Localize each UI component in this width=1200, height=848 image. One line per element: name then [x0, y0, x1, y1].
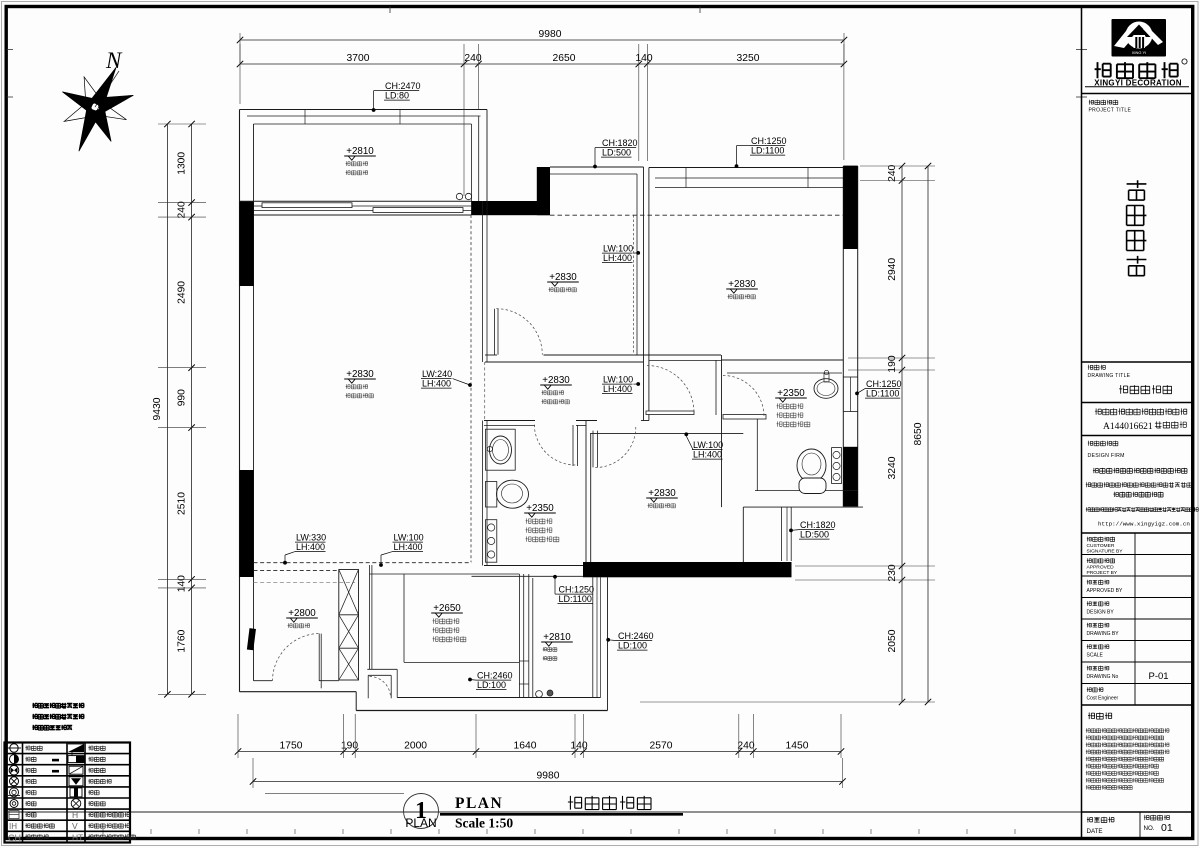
svg-text:CH:1250: CH:1250	[751, 136, 787, 146]
svg-text:+2800: +2800	[288, 608, 316, 619]
svg-text:2650: 2650	[553, 53, 576, 64]
svg-text:LH:400: LH:400	[422, 379, 451, 389]
svg-text:SCALE: SCALE	[1087, 653, 1104, 659]
svg-text:LW:100: LW:100	[603, 244, 633, 254]
svg-text:N: N	[105, 48, 123, 73]
svg-text:240: 240	[177, 201, 188, 218]
svg-text:APPROVED: APPROVED	[1087, 565, 1115, 571]
svg-text:240: 240	[464, 53, 481, 64]
svg-text:1640: 1640	[514, 741, 537, 752]
svg-text:LD:100: LD:100	[618, 641, 647, 651]
svg-text:Scale 1:50: Scale 1:50	[455, 816, 513, 831]
svg-text:CH:2470: CH:2470	[385, 81, 421, 91]
svg-text:LD:1100: LD:1100	[866, 389, 899, 399]
svg-text:http://www.xingyigz.com.cn: http://www.xingyigz.com.cn	[1098, 521, 1190, 528]
svg-text:DRAWING No: DRAWING No	[1087, 674, 1119, 680]
svg-text:9980: 9980	[537, 771, 560, 782]
svg-text:CH:2460: CH:2460	[477, 671, 513, 681]
svg-text:+2350: +2350	[526, 503, 554, 514]
svg-text:CH:1250: CH:1250	[559, 585, 595, 595]
svg-text:PROJECT TITLE: PROJECT TITLE	[1089, 108, 1132, 114]
svg-text:LW:240: LW:240	[422, 369, 452, 379]
svg-text:+2830: +2830	[648, 488, 676, 499]
svg-text:XINGYI DECORATION: XINGYI DECORATION	[1094, 78, 1182, 87]
svg-text:CH: CH	[8, 833, 21, 843]
svg-text:LD:500: LD:500	[800, 530, 829, 540]
svg-text:LW:330: LW:330	[296, 533, 326, 543]
svg-text:PLAN: PLAN	[405, 816, 436, 830]
svg-text:NO.: NO.	[1144, 825, 1155, 832]
svg-text:LH:400: LH:400	[394, 542, 423, 552]
svg-text:+2650: +2650	[433, 603, 461, 614]
svg-text:CH:1250: CH:1250	[866, 379, 902, 389]
svg-text:V: V	[72, 821, 78, 831]
svg-text:A144016621: A144016621	[1103, 422, 1153, 432]
svg-text:8650: 8650	[913, 422, 924, 445]
svg-text:2490: 2490	[177, 281, 188, 304]
svg-text:SIGNATURE BY: SIGNATURE BY	[1087, 549, 1124, 555]
svg-text:140: 140	[635, 53, 652, 64]
svg-text:PLAN: PLAN	[455, 795, 503, 812]
svg-text:9980: 9980	[539, 29, 562, 40]
svg-text:3250: 3250	[737, 53, 760, 64]
svg-text:LH:400: LH:400	[296, 542, 325, 552]
svg-text:+2810: +2810	[543, 632, 571, 643]
svg-text:240: 240	[737, 741, 754, 752]
svg-text:3700: 3700	[347, 53, 370, 64]
svg-text:IH: IH	[9, 822, 17, 831]
svg-text:Cost Engineer: Cost Engineer	[1087, 696, 1119, 702]
svg-text:+2830: +2830	[346, 369, 374, 380]
svg-text:LD:500: LD:500	[602, 148, 631, 158]
svg-text:LW:100: LW:100	[603, 375, 633, 385]
svg-text:DATE: DATE	[1087, 828, 1103, 835]
svg-text:CH:2460: CH:2460	[618, 631, 654, 641]
svg-text:1760: 1760	[177, 629, 188, 652]
svg-text:2510: 2510	[177, 492, 188, 515]
svg-text:H: H	[72, 810, 78, 820]
svg-text:CUSTOMER: CUSTOMER	[1087, 543, 1115, 549]
svg-text:HT: HT	[72, 832, 83, 842]
svg-text:DRAWING BY: DRAWING BY	[1087, 631, 1120, 637]
svg-text:LH:400: LH:400	[603, 384, 632, 394]
svg-text:LD:80: LD:80	[385, 91, 409, 101]
svg-text:DRAWING TITLE: DRAWING TITLE	[1088, 373, 1131, 379]
svg-text:LD:100: LD:100	[477, 680, 506, 690]
svg-text:LW:100: LW:100	[693, 440, 723, 450]
svg-text:DESIGN BY: DESIGN BY	[1087, 610, 1115, 616]
svg-text:+2350: +2350	[777, 388, 805, 399]
svg-text:1450: 1450	[786, 741, 809, 752]
svg-text:LD:1100: LD:1100	[751, 146, 784, 156]
svg-text:XING YI: XING YI	[1132, 50, 1147, 55]
svg-text:+2810: +2810	[346, 146, 374, 157]
svg-text:+2830: +2830	[542, 375, 570, 386]
svg-text:LW:100: LW:100	[394, 533, 424, 543]
svg-text:LD:1100: LD:1100	[559, 594, 592, 604]
svg-text:1750: 1750	[280, 741, 303, 752]
svg-text:990: 990	[177, 389, 188, 406]
svg-text:140: 140	[177, 575, 188, 592]
svg-text:2050: 2050	[887, 629, 898, 652]
svg-text:+2830: +2830	[728, 279, 756, 290]
svg-text:3240: 3240	[887, 456, 898, 479]
svg-text:DESIGN FIRM: DESIGN FIRM	[1088, 453, 1125, 459]
svg-text:+2830: +2830	[549, 272, 577, 283]
svg-text:LH:400: LH:400	[603, 253, 632, 263]
svg-text:230: 230	[887, 564, 898, 581]
svg-text:APPROVED BY: APPROVED BY	[1087, 588, 1124, 594]
svg-text:9430: 9430	[152, 397, 163, 420]
svg-text:1300: 1300	[177, 152, 188, 175]
svg-text:2000: 2000	[404, 741, 427, 752]
svg-text:01: 01	[1161, 822, 1173, 834]
svg-text:CH:1820: CH:1820	[602, 138, 638, 148]
svg-text:240: 240	[887, 164, 898, 181]
svg-text:LH:400: LH:400	[693, 450, 722, 460]
svg-text:140: 140	[570, 741, 587, 752]
svg-text:2940: 2940	[887, 258, 898, 281]
svg-text:CH:1820: CH:1820	[800, 520, 836, 530]
svg-text:2570: 2570	[650, 741, 673, 752]
svg-text:P-01: P-01	[1149, 671, 1169, 682]
svg-text:PROJECT BY: PROJECT BY	[1087, 570, 1118, 576]
